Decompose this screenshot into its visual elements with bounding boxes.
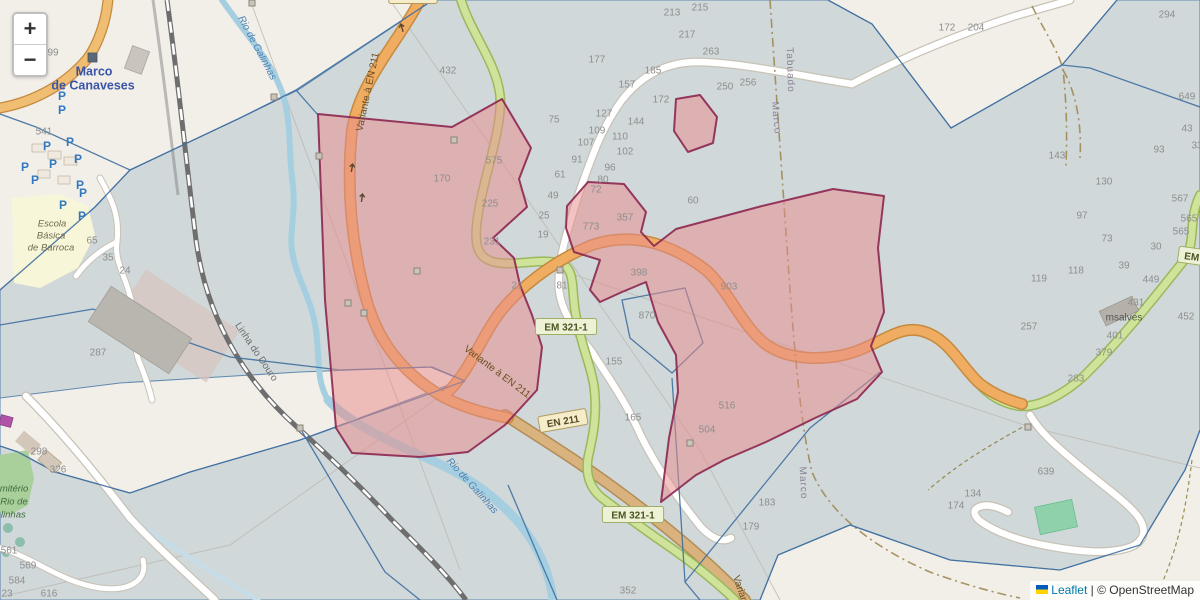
map-label-town: Marco xyxy=(76,64,113,78)
map-label-place: msalves xyxy=(1106,313,1143,324)
parcel-number: 357 xyxy=(617,213,634,224)
parcel-number: 60 xyxy=(687,196,699,207)
map-label-cemetery: Galinhas xyxy=(0,510,26,521)
map-canvas[interactable]: 2132152172631771851572502561721271447510… xyxy=(0,0,1200,600)
parcel-number: 567 xyxy=(1172,194,1189,205)
parcel-number: 204 xyxy=(968,23,985,34)
parcel-number: 569 xyxy=(20,561,37,572)
attribution-separator: | xyxy=(1091,583,1094,597)
parcel-number: 575 xyxy=(486,156,503,167)
parcel-number: 504 xyxy=(699,425,716,436)
parcel-number: 616 xyxy=(41,589,58,600)
parcel-number: 773 xyxy=(583,222,600,233)
parking-icon: P xyxy=(58,89,66,103)
parcel-number: 584 xyxy=(9,576,26,587)
parcel-number: 21 xyxy=(511,281,523,292)
parcel-number: 541 xyxy=(36,127,53,138)
parcel-number: 24 xyxy=(119,266,131,277)
parcel-number: 172 xyxy=(939,23,956,34)
parcel-number: 93 xyxy=(1153,145,1165,156)
parcel-number: 33 xyxy=(1191,141,1200,152)
parcel-number: 165 xyxy=(625,413,642,424)
parcel-number: 25 xyxy=(538,211,550,222)
parcel-number: 144 xyxy=(628,117,645,128)
parcel-number: 134 xyxy=(965,489,982,500)
parcel-number: 65 xyxy=(86,236,98,247)
parcel-number: 183 xyxy=(759,498,776,509)
svg-text:EM 321-1: EM 321-1 xyxy=(544,323,588,334)
parking-icon: P xyxy=(59,198,67,212)
parking-icon: P xyxy=(66,135,74,149)
parcel-number: 61 xyxy=(554,170,566,181)
parcel-number: 213 xyxy=(664,8,681,19)
zoom-in-button[interactable]: + xyxy=(14,14,46,45)
map-label-boundary: Marco xyxy=(797,466,810,499)
parcel-number: 96 xyxy=(604,163,616,174)
parcel-number: 257 xyxy=(1021,322,1038,333)
parcel-number: 431 xyxy=(1128,298,1145,309)
parcel-number: 561 xyxy=(1,546,18,557)
parcel-number: 107 xyxy=(578,138,595,149)
parcel-number: 19 xyxy=(537,230,549,241)
parcel-number: 870 xyxy=(639,311,656,322)
parcel-number: 250 xyxy=(717,82,734,93)
svg-text:EN 211: EN 211 xyxy=(397,0,430,3)
parcel-number: 565 xyxy=(1181,214,1198,225)
parcel-number: 298 xyxy=(31,447,48,458)
pylon-icon xyxy=(451,137,457,143)
building xyxy=(38,170,50,178)
parcel-number: 287 xyxy=(90,348,107,359)
parcel-number: 75 xyxy=(548,115,560,126)
parcel-number: 432 xyxy=(440,66,457,77)
parcel-number: 283 xyxy=(1068,374,1085,385)
map-label-boundary: Tabuado xyxy=(784,47,797,93)
parking-icon: P xyxy=(74,152,82,166)
parcel-number: 35 xyxy=(102,253,114,264)
parcel-number: 231 xyxy=(484,237,501,248)
map-label-cemetery: Cemitério xyxy=(0,484,28,495)
parcel-number: 649 xyxy=(1179,92,1196,103)
pylon-icon xyxy=(414,268,420,274)
parcel-number: 130 xyxy=(1096,177,1113,188)
parking-icon: P xyxy=(31,173,39,187)
map-label-school: de Barroca xyxy=(28,243,74,254)
pylon-icon xyxy=(297,425,303,431)
parcel-number: 118 xyxy=(1068,266,1084,277)
parcel-number: 177 xyxy=(589,55,606,66)
map-label-school: Escola xyxy=(38,219,67,230)
parcel-number: 43 xyxy=(1181,124,1193,135)
building xyxy=(58,176,70,184)
map-label-school: Básica xyxy=(37,231,66,242)
parcel-number: 157 xyxy=(619,80,636,91)
parcel-number: 639 xyxy=(1038,467,1055,478)
svg-text:EM 321-1: EM 321-1 xyxy=(611,511,655,522)
osm-link[interactable]: © OpenStreetMap xyxy=(1097,583,1194,597)
parcel-number: 110 xyxy=(612,132,628,143)
pylon-icon xyxy=(316,153,322,159)
parcel-number: 102 xyxy=(617,147,634,158)
parcel-number: 452 xyxy=(1178,312,1195,323)
parcel-number: 81 xyxy=(556,281,568,292)
parcel-number: 39 xyxy=(1118,261,1130,272)
parcel-number: 185 xyxy=(645,66,662,77)
parcel-number: 398 xyxy=(631,268,648,279)
parcel-number: 217 xyxy=(679,30,696,41)
parcel-number: 73 xyxy=(1101,234,1113,245)
pylon-icon xyxy=(557,267,563,273)
parcel-number: 170 xyxy=(434,174,451,185)
road-shield: EM 321-1 xyxy=(535,319,596,335)
parking-icon: P xyxy=(58,103,66,117)
zoom-control: + − xyxy=(12,12,48,77)
parcel-number: 516 xyxy=(719,401,736,412)
parcel-number: 143 xyxy=(1049,151,1066,162)
attribution-bar: Leaflet | © OpenStreetMap xyxy=(1030,581,1200,600)
red-parcel-west xyxy=(318,99,542,457)
road-shield: EM 321-1 xyxy=(602,507,663,523)
parcel-number: 565 xyxy=(1173,227,1190,238)
parcel-number: 99 xyxy=(47,48,59,59)
pylon-icon xyxy=(1025,424,1031,430)
parking-icon: P xyxy=(21,160,29,174)
leaflet-link[interactable]: Leaflet xyxy=(1051,583,1087,597)
road-shield: EN 211 xyxy=(389,0,437,4)
parcel-number: 91 xyxy=(571,155,583,166)
parcel-number: 72 xyxy=(590,185,602,196)
parcel-number: 155 xyxy=(606,357,623,368)
parcel-number: 352 xyxy=(620,586,637,597)
parcel-number: 215 xyxy=(692,3,709,14)
parcel-number: 119 xyxy=(1031,274,1047,285)
parcel-number: 326 xyxy=(50,465,67,476)
map-label-cemetery: Rio de xyxy=(0,497,27,508)
parcel-number: 256 xyxy=(740,78,757,89)
parcel-number: 401 xyxy=(1107,331,1124,342)
ukraine-flag-icon xyxy=(1036,585,1048,594)
pylon-icon xyxy=(345,300,351,306)
parking-icon: P xyxy=(49,157,57,171)
pylon-icon xyxy=(687,440,693,446)
parking-icon: P xyxy=(78,209,86,223)
parcel-number: 174 xyxy=(948,501,965,512)
pylon-icon xyxy=(361,310,367,316)
parcel-number: 263 xyxy=(703,47,720,58)
parcel-number: 179 xyxy=(743,522,760,533)
parcel-number: 294 xyxy=(1159,10,1176,21)
parcel-number: 449 xyxy=(1143,275,1160,286)
parcel-number: 379 xyxy=(1096,348,1113,359)
parcel-number: 30 xyxy=(1150,242,1162,253)
pylon-icon xyxy=(249,0,255,6)
parcel-number: 127 xyxy=(596,109,613,120)
building xyxy=(88,53,97,62)
pylon-icon xyxy=(271,94,277,100)
parking-icon: P xyxy=(43,139,51,153)
zoom-out-button[interactable]: − xyxy=(14,45,46,75)
parcel-number: 97 xyxy=(1076,211,1088,222)
parcel-number: 903 xyxy=(721,282,738,293)
parcel-number: 109 xyxy=(589,126,606,137)
map-svg: 2132152172631771851572502561721271447510… xyxy=(0,0,1200,600)
parcel-number: 49 xyxy=(547,191,559,202)
parcel-number: 172 xyxy=(653,95,670,106)
parking-icon: P xyxy=(79,186,87,200)
parcel-number: 225 xyxy=(482,199,499,210)
parcel-number: 23 xyxy=(1,589,13,600)
